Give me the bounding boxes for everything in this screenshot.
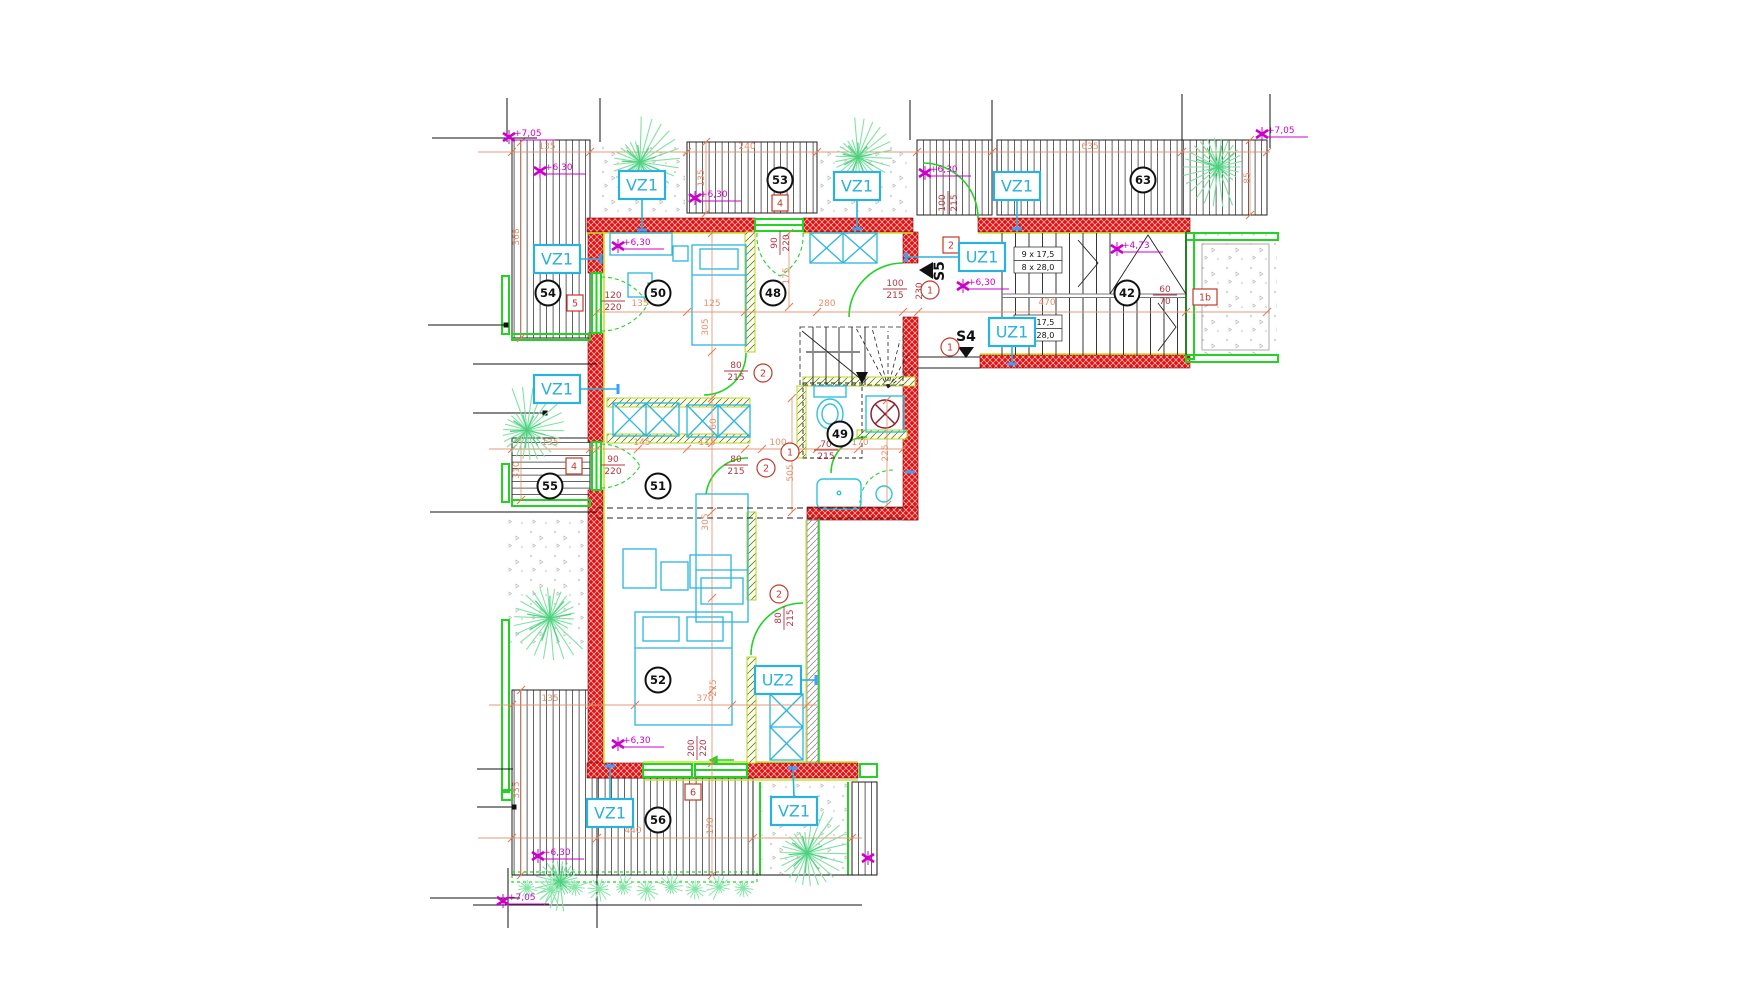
dimension-text: 175: [782, 267, 792, 284]
elevation-mark: +7,05: [1256, 126, 1308, 141]
datum-dot: [504, 323, 509, 328]
door-type-circle-tag: 1: [921, 281, 939, 299]
dimension-text: 145: [633, 438, 650, 448]
datum-line: [477, 805, 517, 810]
window-type-box-tag: 1b: [1193, 289, 1217, 305]
room-number-53: 53: [768, 168, 793, 193]
room-number-text: 63: [1135, 173, 1151, 187]
datum-dot: [512, 805, 517, 810]
wardrobe-room-48: [810, 233, 877, 263]
fraction-denominator: 220: [782, 234, 792, 251]
elevation-mark: +4,73: [1111, 241, 1163, 256]
window-type-box-tag: 5: [567, 295, 583, 311]
elevation-text: +6,30: [930, 165, 958, 175]
tag-text: 6: [690, 788, 696, 799]
toilet-tank: [814, 386, 846, 397]
tag-text: 4: [777, 199, 783, 210]
fraction-numerator: 90: [770, 237, 780, 249]
fraction-denominator: 220: [604, 303, 621, 313]
window-type-box-tag: 6: [685, 784, 701, 800]
dimension-text: 135: [538, 142, 555, 152]
plant-frond: [527, 430, 564, 431]
dimension-text: 135: [541, 694, 558, 704]
tag-text: 1: [947, 343, 953, 354]
tag-text: 2: [948, 241, 954, 252]
room-number-text: 42: [1119, 286, 1135, 300]
dimension-text: 505: [786, 464, 796, 481]
tag-text: VZ1: [841, 177, 873, 196]
elevation-text: +7,05: [514, 129, 542, 139]
wardrobe-corridor-a: [613, 403, 679, 436]
stair-note: 9 x 17,5: [1022, 250, 1055, 259]
window-type-box-tag: 4: [772, 195, 788, 211]
dimension-text: 240: [738, 142, 755, 152]
elevation-text: +6,30: [545, 163, 573, 173]
plant-frond: [647, 889, 656, 890]
fraction-denominator: 220: [699, 739, 709, 756]
stair-note: 8 x 28,0: [1022, 263, 1055, 272]
elevation-mark: +6,30: [612, 238, 664, 253]
tag-text: 2: [776, 590, 782, 601]
fraction-denominator: 215: [727, 373, 744, 383]
fraction-denominator: 70: [1159, 297, 1171, 307]
room-number-56: 56: [646, 808, 671, 833]
fraction-numerator: 60: [1159, 285, 1171, 295]
window-type-box-tag: 4: [566, 458, 582, 474]
tag-text: 1b: [1199, 293, 1211, 304]
section-label: S5: [932, 261, 948, 281]
room-number-text: 50: [650, 286, 666, 300]
fraction-denominator: 215: [950, 194, 960, 211]
tag-text: VZ1: [541, 380, 573, 399]
tag-text: 2: [763, 464, 769, 475]
tag-text: UZ1: [966, 248, 999, 267]
fraction-numerator: 80: [774, 612, 784, 624]
dimension-text: 135: [541, 438, 558, 448]
fraction-numerator: 120: [604, 291, 621, 301]
fraction-denominator: 215: [817, 452, 834, 462]
plant: [686, 881, 706, 900]
floor-plan-drawing: 1352406358513536813512528047017530513514…: [0, 0, 1740, 1006]
section-label: S4: [956, 329, 976, 345]
dimension-text: 335: [512, 781, 522, 798]
door-type-circle-tag: 1: [941, 338, 959, 356]
room-number-54: 54: [536, 281, 561, 306]
room-number-42: 42: [1115, 281, 1140, 306]
door-type-circle-tag: 2: [757, 459, 775, 477]
room-number-63: 63: [1131, 168, 1156, 193]
elevation-text: +6,30: [623, 736, 651, 746]
door-size-fraction: 100215: [883, 279, 907, 301]
dimension-text: 178: [706, 817, 716, 834]
dimension-text: 305: [701, 318, 711, 335]
room-number-text: 49: [832, 427, 848, 441]
tag-leader: [793, 768, 794, 797]
room-number-text: 53: [772, 173, 788, 187]
elevation-text: +6,30: [623, 238, 651, 248]
room-number-text: 55: [542, 479, 558, 493]
dimension-line: [593, 308, 1271, 316]
room-number-text: 48: [765, 286, 781, 300]
tag-text: VZ1: [1001, 177, 1033, 196]
elevation-text: +7,05: [508, 893, 536, 903]
room-number-text: 54: [540, 286, 556, 300]
room-number-51: 51: [646, 474, 671, 499]
door-size-fraction: 90220: [770, 231, 792, 255]
elevation-text: +6,30: [700, 190, 728, 200]
fraction-numerator: 80: [730, 455, 742, 465]
fraction-denominator: 215: [886, 291, 903, 301]
tag-text: 2: [760, 369, 766, 380]
tag-text: VZ1: [626, 176, 658, 195]
sink: [817, 479, 861, 509]
dimension-text: 60: [709, 418, 719, 430]
section-arrow-icon: [958, 347, 974, 358]
planter: [502, 464, 509, 502]
door-type-circle-tag: 2: [754, 364, 772, 382]
datum-line: [473, 411, 548, 416]
elevation-mark: +6,30: [612, 736, 664, 751]
room-number-text: 51: [650, 479, 666, 493]
door-type-circle-tag: 2: [770, 585, 788, 603]
nightstand: [673, 246, 688, 261]
bed-room-51: [696, 494, 748, 622]
dimension-text: 370: [696, 694, 713, 704]
plant: [735, 881, 753, 898]
elevation-text: +7,05: [1267, 126, 1295, 136]
tag-text: UZ2: [762, 671, 795, 690]
tag-text: VZ1: [541, 250, 573, 269]
room-number-52: 52: [646, 668, 671, 693]
section-mark-s5: S5: [919, 261, 948, 281]
dimension-text: 305: [701, 513, 711, 530]
plant: [637, 881, 659, 901]
dimension-text: 85: [1243, 172, 1253, 183]
datum-line: [428, 323, 509, 328]
plant: [658, 874, 683, 894]
tag-text: 1: [787, 448, 793, 459]
wardrobe-uz2: [770, 694, 803, 760]
tag-text: 4: [571, 462, 577, 473]
fraction-numerator: 100: [938, 194, 948, 211]
dimension-text: 115: [698, 438, 715, 448]
fraction-denominator: 215: [786, 609, 796, 626]
door-type-circle-tag: 1: [781, 443, 799, 461]
shower-head: [871, 400, 899, 428]
dimension-text: 135: [631, 299, 648, 309]
dimension-text: 170: [851, 438, 868, 448]
small-sink: [876, 486, 892, 502]
bed-room-52: [635, 612, 732, 725]
door-size-fraction: 200220: [687, 736, 709, 760]
exterior-light-wall: [806, 520, 819, 763]
tag-text: UZ1: [996, 323, 1029, 342]
elevation-mark: +7,05: [497, 893, 549, 908]
plant-frond: [599, 889, 608, 890]
dimension-text: 310: [512, 461, 522, 478]
fraction-denominator: 215: [727, 467, 744, 477]
dimension-text: 280: [818, 299, 835, 309]
room-number-49: 49: [828, 422, 853, 447]
plant-frond: [807, 853, 847, 854]
dimension-text: 135: [697, 169, 707, 186]
tag-text: 5: [572, 299, 578, 310]
fraction-numerator: 100: [886, 279, 903, 289]
red-walls: [587, 218, 1190, 778]
plant: [706, 875, 730, 900]
wall-tag-vz1: VZ1: [534, 375, 618, 403]
dimension-text: 635: [1081, 142, 1098, 152]
room-number-50: 50: [646, 281, 671, 306]
room-number-48: 48: [761, 281, 786, 306]
elevation-mark: +6,30: [957, 278, 1009, 293]
room-number-text: 52: [650, 673, 666, 687]
fraction-numerator: 80: [730, 361, 742, 371]
fraction-denominator: 220: [604, 467, 621, 477]
planter: [502, 620, 509, 792]
section-arrow-icon: [919, 262, 933, 279]
plant-frond: [637, 890, 647, 891]
floor-plan-canvas: 1352406358513536813512528047017530513514…: [0, 0, 1740, 1006]
elevation-text: +4,73: [1122, 241, 1150, 251]
section-mark-s4: S4: [956, 329, 976, 358]
tag-text: VZ1: [778, 802, 810, 821]
fraction-numerator: 90: [607, 455, 619, 465]
dimension-text: 125: [703, 299, 720, 309]
room-number-text: 56: [650, 813, 666, 827]
window-type-box-tag: 2: [943, 237, 959, 253]
dimension-text: 368: [512, 228, 522, 245]
door-size-fraction: 6070: [1153, 285, 1177, 307]
elevation-text: +6,30: [968, 278, 996, 288]
fraction-numerator: 200: [687, 739, 697, 756]
plant-frond: [622, 161, 640, 162]
window: [860, 764, 877, 777]
dimension-text: 470: [1038, 298, 1055, 308]
plant: [616, 874, 634, 895]
room-number-55: 55: [538, 474, 563, 499]
tag-text: 1: [927, 286, 933, 297]
tag-text: VZ1: [594, 804, 626, 823]
dimension-text: 225: [881, 444, 891, 461]
elevation-text: +6,30: [543, 848, 571, 858]
